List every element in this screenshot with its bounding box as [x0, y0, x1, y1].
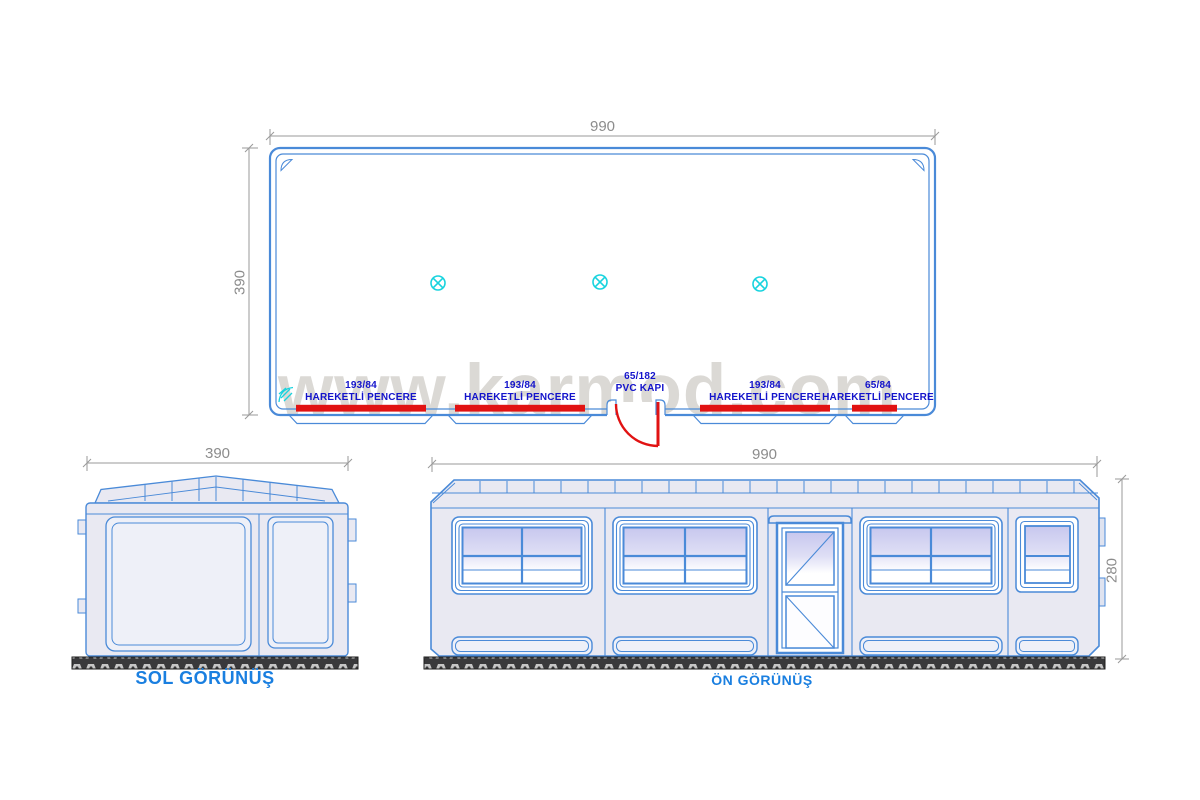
left-panel-small — [268, 517, 333, 648]
corner-detail-top-right — [913, 160, 924, 171]
front-window-small — [1016, 517, 1078, 592]
opening-label-door: 65/182 PVC KAPI — [570, 371, 710, 394]
opening-size: 193/84 — [450, 380, 590, 392]
plan-window-markers — [296, 405, 897, 412]
right-tab — [348, 519, 356, 541]
plan-window-recesses — [289, 415, 904, 424]
ceiling-lamp-icon — [431, 276, 445, 290]
opening-label-window-4: 65/84 HAREKETLİ PENCERE — [808, 380, 948, 403]
technical-drawing-canvas: www.karmod.com — [0, 0, 1200, 800]
ceiling-lamp-icon — [593, 275, 607, 289]
opening-size: 65/84 — [808, 380, 948, 392]
front-ground — [424, 657, 1105, 669]
front-window-1 — [452, 517, 592, 594]
left-tab — [78, 599, 86, 613]
front-view-height-dimension: 280 — [1104, 551, 1121, 591]
left-view-width-dimension: 390 — [87, 445, 348, 462]
left-view-title: SOL GÖRÜNÜŞ — [90, 668, 320, 689]
opening-size: 65/182 — [570, 371, 710, 383]
opening-type: HAREKETLİ PENCERE — [808, 392, 948, 404]
front-view-width-dimension: 990 — [432, 446, 1097, 463]
corner-detail-top-left — [281, 160, 292, 171]
opening-label-window-1: 193/84 HAREKETLİ PENCERE — [291, 380, 431, 403]
opening-label-window-2: 193/84 HAREKETLİ PENCERE — [450, 380, 590, 403]
front-view-title: ÖN GÖRÜNÜŞ — [662, 672, 862, 688]
right-tab — [348, 584, 356, 602]
plan-width-dimension: 990 — [270, 118, 935, 135]
left-roof — [95, 476, 339, 503]
vent-panel — [860, 637, 1002, 655]
opening-size: 193/84 — [291, 380, 431, 392]
left-view — [72, 456, 358, 669]
vent-panel — [452, 637, 592, 655]
ceiling-lamp-icons — [431, 275, 767, 291]
window-opening-marker — [700, 405, 830, 412]
front-door — [769, 516, 851, 653]
window-opening-marker — [455, 405, 585, 412]
right-edge-tab — [1099, 518, 1105, 546]
vent-panel — [613, 637, 757, 655]
front-window-3 — [860, 517, 1002, 594]
window-opening-marker — [296, 405, 426, 412]
plan-door — [607, 400, 665, 446]
opening-type: HAREKETLİ PENCERE — [291, 392, 431, 404]
plan-depth-dimension: 390 — [232, 263, 249, 303]
window-opening-marker — [852, 405, 897, 412]
left-panel-large — [106, 517, 251, 651]
opening-type: PVC KAPI — [570, 383, 710, 395]
front-window-2 — [613, 517, 757, 594]
front-view — [424, 456, 1129, 669]
left-tab — [78, 520, 86, 534]
ceiling-lamp-icon — [753, 277, 767, 291]
vent-panel — [1016, 637, 1078, 655]
opening-type: HAREKETLİ PENCERE — [450, 392, 590, 404]
